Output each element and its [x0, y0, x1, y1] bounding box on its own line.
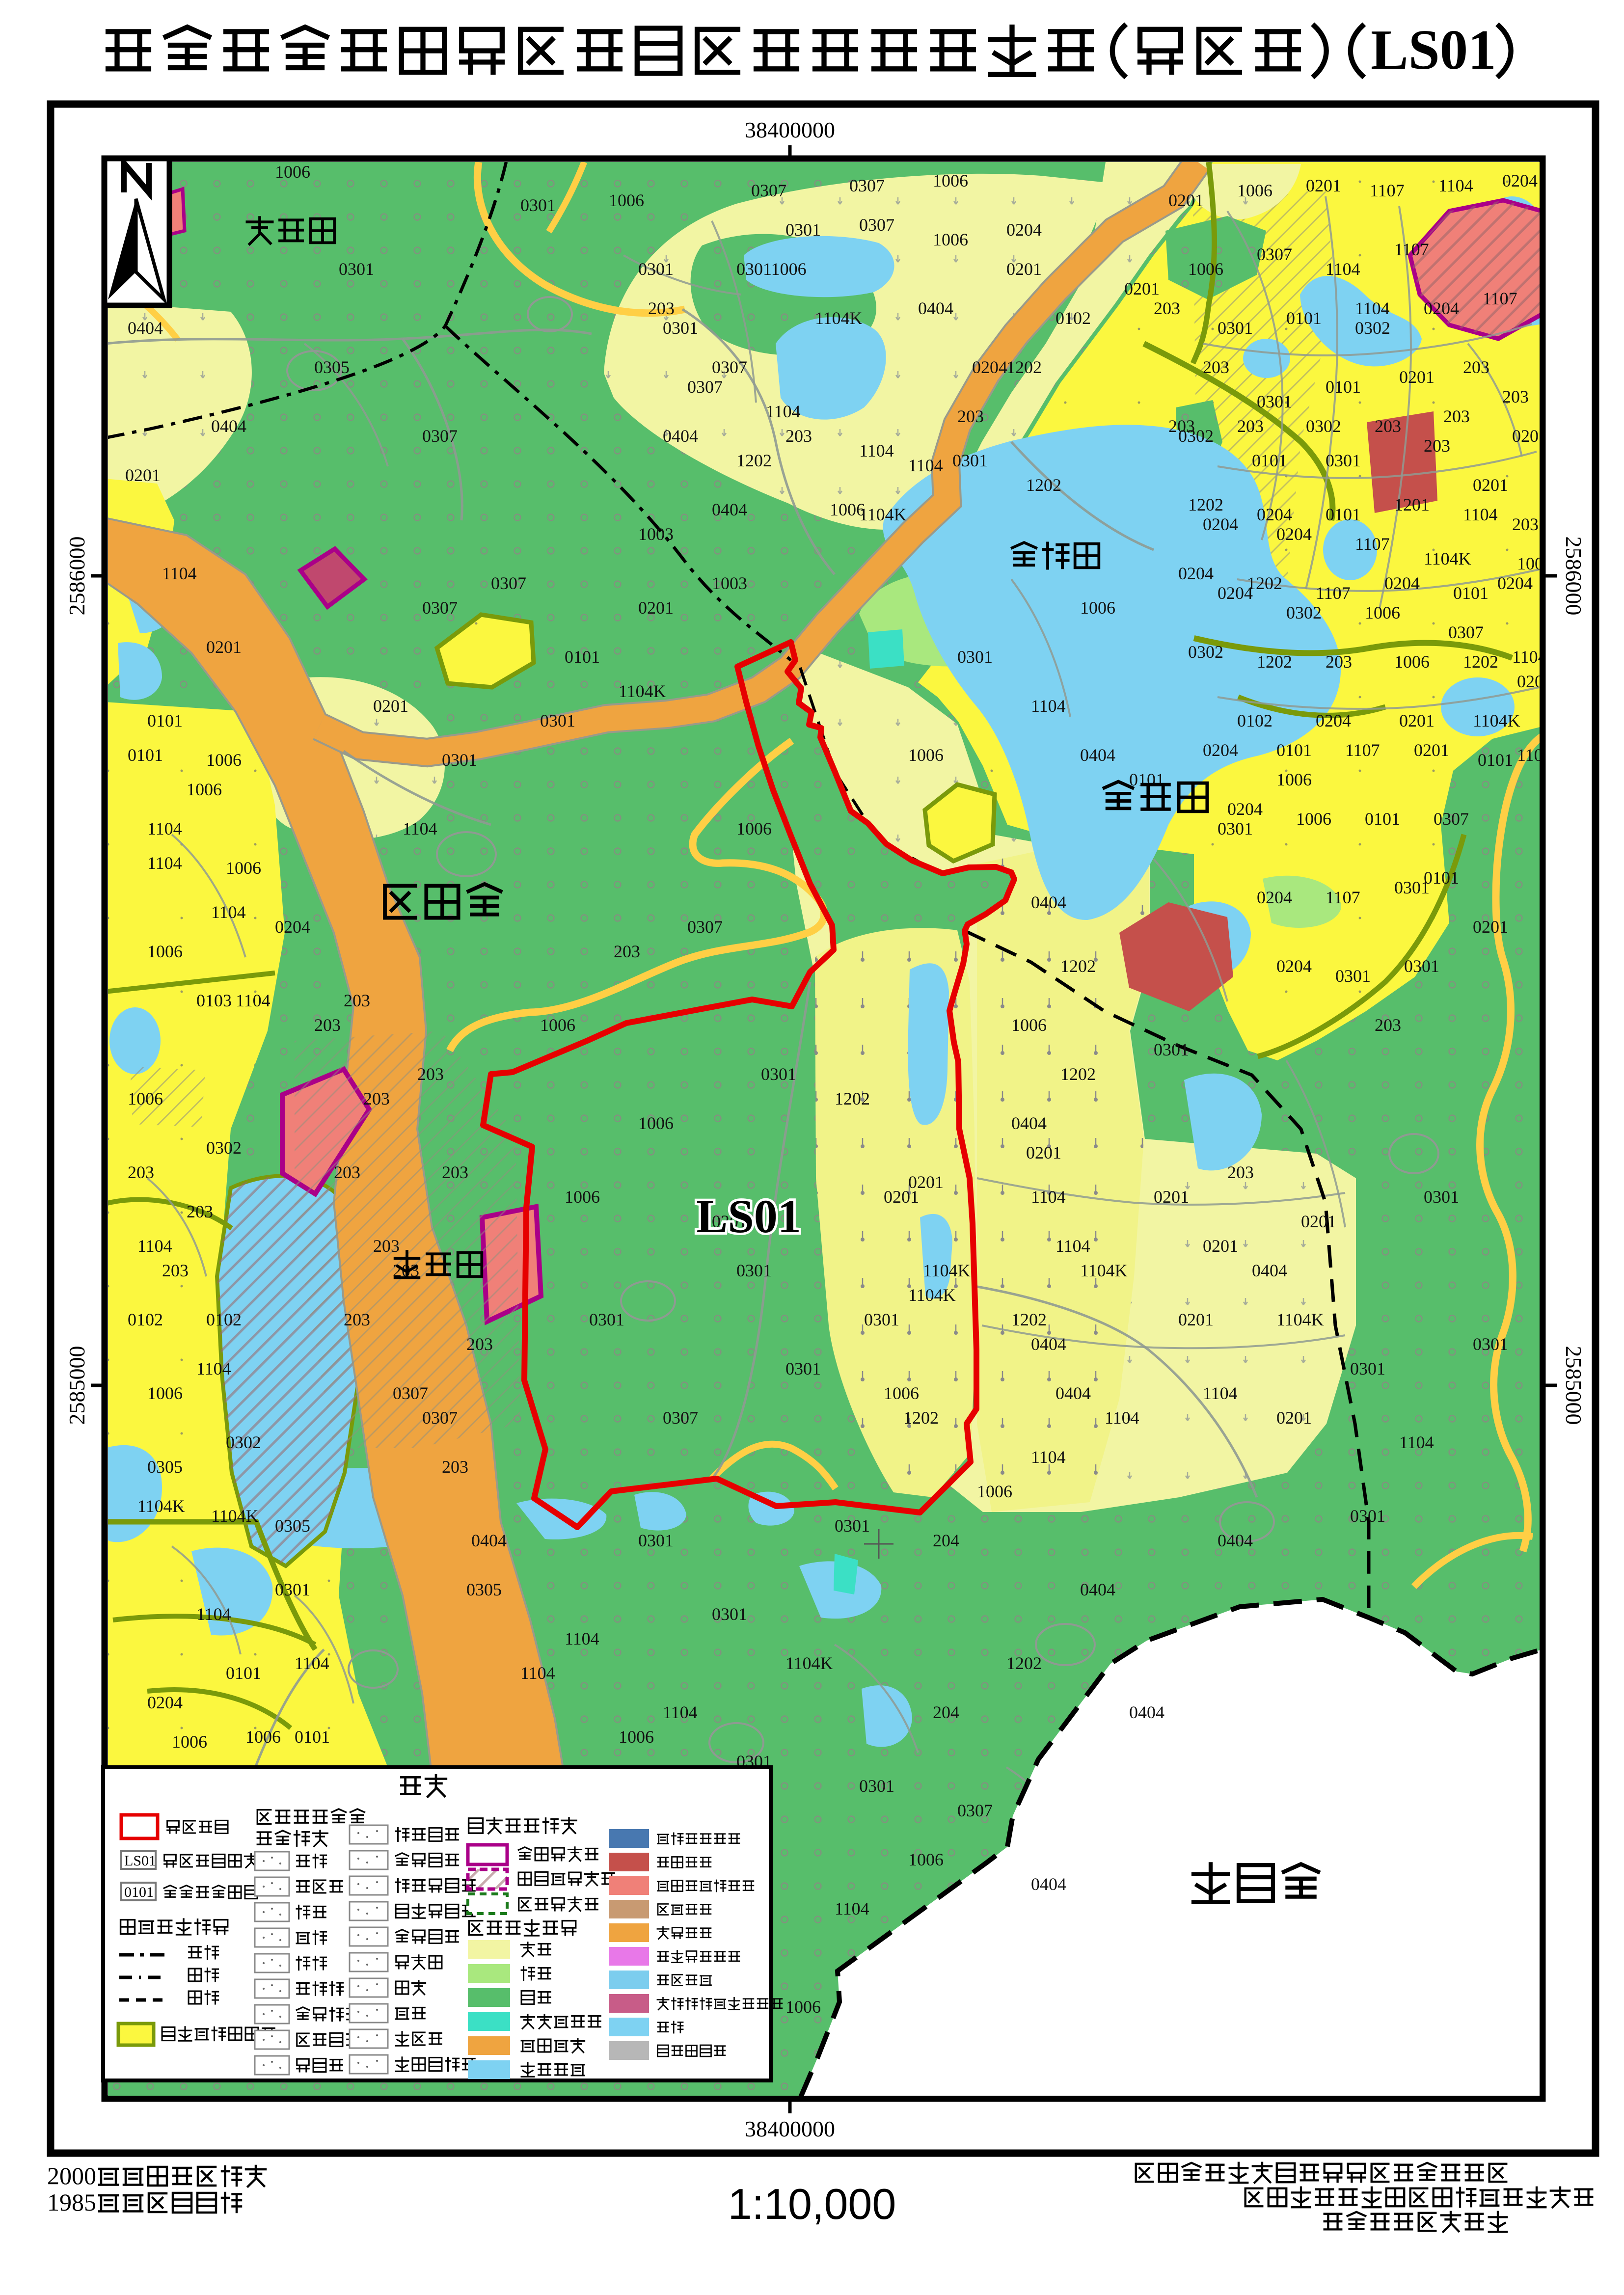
svg-text:1104K: 1104K: [815, 308, 863, 328]
svg-text:0404: 0404: [1031, 1334, 1066, 1354]
svg-text:0301: 0301: [638, 1531, 674, 1550]
svg-text:0307: 0307: [849, 176, 885, 195]
svg-text:1006: 1006: [172, 1732, 207, 1752]
svg-text:0301: 0301: [520, 195, 556, 215]
svg-text:1104: 1104: [147, 853, 182, 873]
svg-text:0201: 0201: [1306, 176, 1341, 195]
svg-text:0307: 0307: [957, 1801, 993, 1820]
svg-text:203: 203: [1375, 416, 1401, 436]
svg-text:1104K: 1104K: [908, 1285, 956, 1305]
svg-text:203: 203: [1375, 1015, 1401, 1035]
svg-text:1104: 1104: [835, 1899, 869, 1918]
svg-text:1006: 1006: [540, 1015, 575, 1035]
svg-text:0404: 0404: [1011, 1113, 1047, 1133]
svg-text:0204: 0204: [147, 1693, 183, 1712]
svg-text:0301: 0301: [952, 451, 988, 470]
svg-text:1104: 1104: [766, 402, 801, 421]
svg-text:1104K: 1104K: [1080, 1261, 1128, 1280]
svg-text:0307: 0307: [712, 357, 747, 377]
svg-text:1107: 1107: [1394, 240, 1429, 259]
svg-text:1104: 1104: [1399, 1432, 1434, 1452]
svg-text:1:10,000: 1:10,000: [728, 2180, 896, 2228]
svg-text:0302: 0302: [206, 1138, 242, 1158]
svg-text:0301: 0301: [736, 1261, 772, 1280]
svg-text:0101: 0101: [565, 647, 600, 667]
svg-text:0404: 0404: [1080, 1580, 1115, 1599]
svg-text:1104: 1104: [663, 1702, 698, 1722]
svg-text:0204: 0204: [1257, 888, 1292, 907]
svg-text:203: 203: [1326, 652, 1352, 672]
svg-text:0204: 0204: [1257, 505, 1292, 524]
svg-text:0201: 0201: [1276, 1408, 1312, 1428]
svg-text:0204: 0204: [1006, 220, 1042, 240]
svg-text:0101: 0101: [1276, 740, 1312, 760]
svg-text:0101: 0101: [1326, 377, 1361, 397]
svg-text:0201: 0201: [638, 598, 674, 618]
svg-text:203: 203: [187, 1202, 213, 1221]
svg-text:1104: 1104: [162, 564, 197, 583]
svg-text:0201: 0201: [1301, 1212, 1336, 1231]
svg-text:0301: 0301: [1154, 1040, 1189, 1059]
svg-text:0102: 0102: [128, 1310, 163, 1329]
svg-text:0204: 0204: [1276, 524, 1312, 544]
svg-text:0101: 0101: [1365, 809, 1400, 829]
svg-text:1006: 1006: [565, 1187, 600, 1207]
svg-text:0302: 0302: [1355, 318, 1390, 338]
svg-text:1104: 1104: [1438, 176, 1473, 195]
svg-text:1201: 1201: [1394, 495, 1430, 514]
svg-text:1006: 1006: [128, 1089, 163, 1108]
svg-text:0404: 0404: [712, 500, 747, 519]
svg-text:203: 203: [417, 1064, 444, 1084]
svg-text:1202: 1202: [903, 1408, 939, 1428]
svg-text:0201: 0201: [1124, 279, 1160, 298]
svg-text:1104K: 1104K: [859, 505, 907, 524]
svg-text:1202: 1202: [736, 451, 772, 470]
svg-text:0307: 0307: [663, 1408, 698, 1428]
svg-text:1006: 1006: [147, 1383, 183, 1403]
svg-text:203: 203: [363, 1089, 390, 1108]
svg-text:0201: 0201: [1006, 259, 1042, 279]
svg-text:203: 203: [614, 942, 640, 961]
svg-text:1006: 1006: [187, 780, 222, 799]
svg-text:0204: 0204: [275, 917, 310, 937]
svg-text:LS01: LS01: [124, 1853, 156, 1869]
svg-text:0301: 0301: [1335, 966, 1371, 986]
svg-text:0404: 0404: [128, 318, 163, 338]
svg-text:0201: 0201: [884, 1187, 919, 1207]
svg-text:0307: 0307: [687, 377, 723, 397]
svg-text:1006: 1006: [933, 230, 968, 249]
svg-text:1202: 1202: [1257, 652, 1292, 672]
svg-text:203: 203: [1237, 416, 1264, 436]
svg-text:0307: 0307: [859, 215, 894, 235]
svg-text:1104: 1104: [196, 1359, 231, 1378]
svg-text:1202: 1202: [1463, 652, 1498, 672]
svg-text:1104K: 1104K: [619, 681, 666, 701]
svg-text:1104: 1104: [1203, 1383, 1238, 1403]
svg-text:0307: 0307: [422, 426, 458, 446]
svg-text:203: 203: [334, 1162, 360, 1182]
svg-text:204: 204: [933, 1702, 959, 1722]
svg-text:1202: 1202: [1006, 357, 1042, 377]
svg-text:1006: 1006: [1237, 181, 1272, 200]
svg-text:0404: 0404: [918, 298, 953, 318]
svg-text:LS01: LS01: [696, 1190, 801, 1242]
svg-text:1104K: 1104K: [785, 1653, 833, 1673]
svg-text:203: 203: [1203, 357, 1229, 377]
svg-text:0101: 0101: [1326, 505, 1361, 524]
svg-text:0101: 0101: [295, 1727, 330, 1747]
svg-text:0404: 0404: [1031, 892, 1066, 912]
svg-text:203: 203: [128, 1162, 154, 1182]
svg-text:1104: 1104: [1031, 696, 1066, 716]
svg-text:1006: 1006: [908, 1850, 944, 1869]
svg-text:03011006: 03011006: [736, 259, 807, 279]
svg-text:0201: 0201: [1154, 1187, 1189, 1207]
svg-text:1104: 1104: [1355, 298, 1390, 318]
svg-text:0404: 0404: [1080, 745, 1115, 765]
svg-text:203: 203: [1463, 357, 1489, 377]
svg-text:0201: 0201: [373, 696, 408, 716]
svg-text:0404: 0404: [1252, 1261, 1287, 1280]
svg-text:0404: 0404: [211, 416, 246, 436]
svg-text:0301: 0301: [1404, 956, 1439, 976]
svg-text:1006: 1006: [1080, 598, 1115, 618]
svg-text:0101: 0101: [1252, 451, 1287, 470]
svg-text:1104: 1104: [1463, 505, 1498, 524]
svg-text:LS01: LS01: [1371, 19, 1496, 81]
svg-text:1006: 1006: [638, 1113, 674, 1133]
svg-text:1104: 1104: [859, 441, 894, 460]
svg-text:0307: 0307: [1448, 622, 1484, 642]
svg-text:1006: 1006: [206, 750, 242, 770]
svg-text:0404: 0404: [1056, 1383, 1091, 1403]
svg-text:2586000: 2586000: [64, 537, 89, 616]
svg-text:0307: 0307: [393, 1383, 428, 1403]
svg-text:1006: 1006: [609, 190, 644, 210]
svg-text:203: 203: [442, 1457, 468, 1477]
svg-text:1107: 1107: [1483, 289, 1517, 308]
svg-text:203: 203: [648, 298, 675, 318]
svg-text:0307: 0307: [491, 573, 526, 593]
svg-text:0301: 0301: [835, 1516, 870, 1536]
svg-text:203: 203: [1443, 406, 1470, 426]
svg-text:0102: 0102: [206, 1310, 242, 1329]
svg-text:0204: 0204: [1227, 799, 1263, 819]
svg-text:0204: 0204: [1424, 298, 1459, 318]
svg-text:1104: 1104: [295, 1653, 329, 1673]
svg-text:203: 203: [785, 426, 812, 446]
svg-text:0204: 0204: [1203, 740, 1238, 760]
svg-text:0301: 0301: [1257, 392, 1292, 411]
svg-text:1104: 1104: [1326, 259, 1360, 279]
svg-text:1202: 1202: [1247, 573, 1282, 593]
svg-text:1104: 1104: [1105, 1408, 1139, 1428]
svg-text:204: 204: [933, 1531, 959, 1550]
svg-text:0301: 0301: [859, 1776, 894, 1796]
svg-text:1107: 1107: [1316, 583, 1351, 603]
svg-text:0201: 0201: [1414, 740, 1449, 760]
svg-text:0301: 0301: [785, 220, 821, 240]
svg-text:2000: 2000: [47, 2162, 96, 2189]
svg-text:1006: 1006: [226, 858, 261, 878]
svg-text:203: 203: [344, 1310, 370, 1329]
svg-text:1006: 1006: [785, 1997, 821, 2017]
svg-text:0301: 0301: [785, 1359, 821, 1378]
svg-text:0301: 0301: [864, 1310, 899, 1329]
svg-text:203: 203: [1154, 298, 1180, 318]
svg-text:0201: 0201: [1399, 367, 1435, 387]
svg-text:1104: 1104: [1056, 1236, 1090, 1256]
svg-text:203: 203: [1512, 514, 1539, 534]
svg-text:0101: 0101: [1453, 583, 1489, 603]
svg-text:1006: 1006: [619, 1727, 654, 1747]
svg-text:1107: 1107: [1345, 740, 1380, 760]
svg-text:1003: 1003: [712, 573, 747, 593]
svg-text:0404: 0404: [1129, 1702, 1164, 1722]
svg-text:1104: 1104: [147, 819, 182, 838]
svg-text:0201: 0201: [1473, 917, 1508, 937]
svg-text:1985: 1985: [47, 2188, 96, 2216]
svg-text:0305: 0305: [314, 357, 350, 377]
svg-text:0404: 0404: [1031, 1874, 1066, 1894]
svg-text:0204: 0204: [1276, 956, 1312, 976]
svg-text:0101: 0101: [1478, 750, 1513, 770]
svg-text:1006: 1006: [977, 1482, 1012, 1501]
svg-text:0204: 0204: [1203, 514, 1238, 534]
svg-text:0201: 0201: [1473, 475, 1508, 495]
svg-text:203: 203: [957, 406, 984, 426]
svg-text:0301: 0301: [589, 1310, 624, 1329]
svg-text:1104: 1104: [1031, 1447, 1066, 1467]
svg-text:1104K: 1104K: [1424, 549, 1471, 568]
svg-text:1104: 1104: [137, 1236, 172, 1256]
svg-text:1202: 1202: [1060, 1064, 1096, 1084]
svg-text:0204: 0204: [1497, 573, 1533, 593]
svg-text:0404: 0404: [1218, 1531, 1253, 1550]
svg-text:1104K: 1104K: [1473, 711, 1520, 730]
svg-text:0101: 0101: [1286, 308, 1322, 328]
svg-text:1006: 1006: [1365, 603, 1400, 622]
svg-text:0404: 0404: [663, 426, 698, 446]
svg-text:0301: 0301: [1218, 318, 1253, 338]
svg-text:0301: 0301: [275, 1580, 310, 1599]
svg-text:0301: 0301: [1473, 1334, 1508, 1354]
svg-text:1104K: 1104K: [211, 1506, 259, 1526]
svg-text:0302: 0302: [1286, 603, 1322, 622]
svg-text:0204: 0204: [1502, 171, 1538, 190]
svg-text:1104: 1104: [211, 902, 246, 922]
svg-text:0201: 0201: [1399, 711, 1435, 730]
svg-text:1104K: 1104K: [1276, 1310, 1324, 1329]
svg-text:1104: 1104: [520, 1663, 555, 1683]
svg-text:1202: 1202: [835, 1089, 870, 1108]
svg-text:0301: 0301: [1350, 1506, 1385, 1526]
svg-text:203: 203: [1502, 387, 1529, 406]
svg-text:1104: 1104: [403, 819, 437, 838]
svg-text:1006: 1006: [147, 942, 183, 961]
svg-text:1006: 1006: [1011, 1015, 1047, 1035]
svg-text:1003: 1003: [638, 524, 674, 544]
svg-text:1107: 1107: [1370, 181, 1405, 200]
svg-text:0307: 0307: [1257, 244, 1292, 264]
svg-text:0101: 0101: [128, 745, 163, 765]
svg-text:203: 203: [466, 1334, 493, 1354]
svg-text:1202: 1202: [1060, 956, 1096, 976]
svg-text:1202: 1202: [1188, 495, 1223, 514]
svg-text:2585000: 2585000: [1561, 1346, 1586, 1425]
svg-text:1006: 1006: [245, 1727, 281, 1747]
svg-text:2586000: 2586000: [1561, 537, 1586, 616]
svg-text:0101: 0101: [226, 1663, 261, 1683]
svg-text:1107: 1107: [1355, 534, 1390, 554]
svg-text:2585000: 2585000: [64, 1346, 89, 1425]
svg-text:1202: 1202: [1026, 475, 1061, 495]
svg-text:0307: 0307: [422, 598, 458, 618]
svg-text:0102: 0102: [1237, 711, 1272, 730]
svg-text:1104: 1104: [1031, 1187, 1066, 1207]
svg-text:0301: 0301: [1394, 878, 1430, 897]
svg-text:1006: 1006: [736, 819, 772, 838]
svg-text:1006: 1006: [1188, 259, 1223, 279]
svg-text:0201: 0201: [1168, 190, 1204, 210]
svg-text:203: 203: [314, 1015, 341, 1035]
svg-text:38400000: 38400000: [745, 117, 835, 142]
svg-text:203: 203: [1227, 1162, 1254, 1182]
svg-text:1006: 1006: [1296, 809, 1331, 829]
svg-text:0204: 0204: [1384, 573, 1420, 593]
svg-text:0305: 0305: [147, 1457, 183, 1477]
svg-text:0301: 0301: [712, 1604, 747, 1624]
svg-text:0301: 0301: [761, 1064, 796, 1084]
svg-text:0307: 0307: [687, 917, 723, 937]
svg-text:1107: 1107: [1326, 888, 1360, 907]
svg-text:1006: 1006: [908, 745, 944, 765]
svg-text:0305: 0305: [275, 1516, 310, 1536]
svg-text:0301: 0301: [339, 259, 374, 279]
svg-text:0204: 0204: [1316, 711, 1351, 730]
svg-text:1006: 1006: [884, 1383, 919, 1403]
svg-text:203: 203: [373, 1236, 400, 1256]
svg-text:203: 203: [1424, 436, 1450, 456]
svg-text:0201: 0201: [1026, 1143, 1061, 1162]
svg-text:0204: 0204: [972, 357, 1007, 377]
svg-text:0102: 0102: [1056, 308, 1091, 328]
svg-text:0404: 0404: [471, 1531, 507, 1550]
svg-text:203: 203: [162, 1261, 189, 1280]
svg-text:1006: 1006: [275, 162, 310, 182]
svg-text:0201: 0201: [206, 637, 242, 657]
svg-text:0201: 0201: [125, 465, 161, 485]
svg-text:0204: 0204: [1178, 564, 1214, 583]
svg-text:0307: 0307: [1434, 809, 1469, 829]
svg-text:203: 203: [1168, 416, 1195, 436]
svg-text:1006: 1006: [1394, 652, 1430, 672]
svg-text:0201: 0201: [1203, 1236, 1238, 1256]
svg-text:1006: 1006: [1276, 770, 1312, 789]
svg-text:0307: 0307: [751, 181, 786, 200]
svg-text:0301: 0301: [442, 750, 477, 770]
svg-text:1104K: 1104K: [923, 1261, 971, 1280]
svg-text:0301: 0301: [1326, 451, 1361, 470]
svg-text:203: 203: [442, 1162, 468, 1182]
svg-text:1104: 1104: [908, 456, 943, 475]
svg-text:203: 203: [344, 991, 370, 1010]
svg-text:0201: 0201: [1178, 1310, 1214, 1329]
svg-text:0101: 0101: [124, 1884, 154, 1900]
svg-text:0301: 0301: [1350, 1359, 1385, 1378]
svg-text:0301: 0301: [663, 318, 698, 338]
svg-text:1104: 1104: [196, 1604, 231, 1624]
svg-text:0302: 0302: [1306, 416, 1341, 436]
svg-text:0301: 0301: [1218, 819, 1253, 838]
svg-text:1104K: 1104K: [137, 1496, 185, 1516]
svg-text:0302: 0302: [1188, 642, 1223, 662]
svg-text:1006: 1006: [933, 171, 968, 190]
svg-text:0301: 0301: [1424, 1187, 1459, 1207]
svg-text:38400000: 38400000: [745, 2116, 835, 2141]
svg-text:0101: 0101: [147, 711, 183, 730]
svg-text:0301: 0301: [957, 647, 993, 667]
svg-text:1104: 1104: [565, 1629, 599, 1648]
svg-text:1202: 1202: [1011, 1310, 1047, 1329]
svg-text:0307: 0307: [422, 1408, 458, 1428]
svg-text:0301: 0301: [540, 711, 575, 730]
svg-text:0103: 0103: [196, 991, 232, 1010]
svg-text:1104: 1104: [236, 991, 271, 1010]
svg-text:0302: 0302: [226, 1432, 261, 1452]
svg-text:1202: 1202: [1006, 1653, 1042, 1673]
svg-text:0305: 0305: [466, 1580, 502, 1599]
svg-text:0301: 0301: [638, 259, 674, 279]
